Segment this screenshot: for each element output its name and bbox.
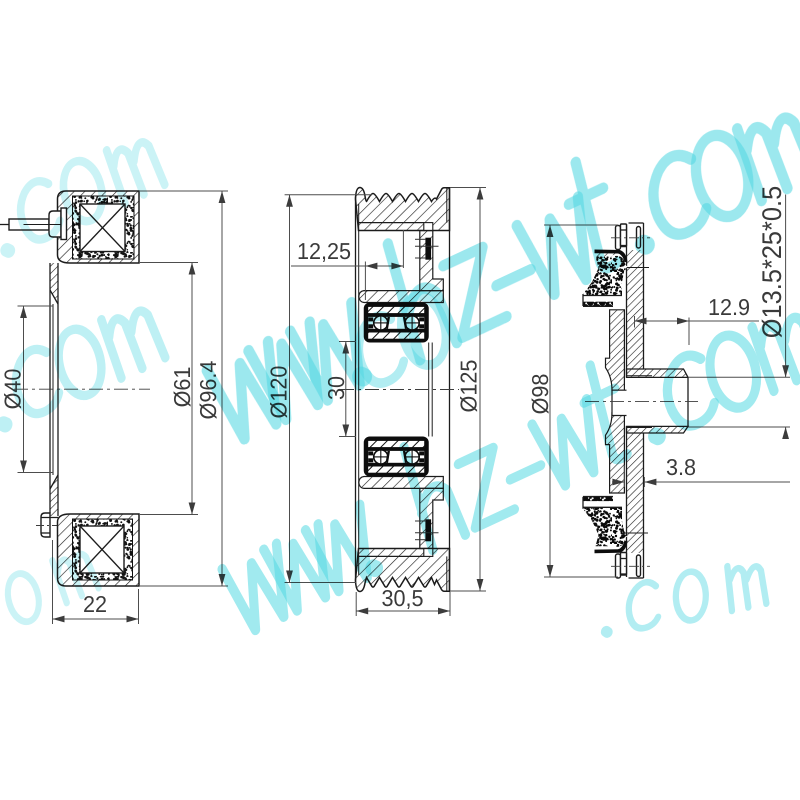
svg-text:Ø61: Ø61 (169, 367, 195, 408)
svg-text:Ø98: Ø98 (527, 374, 553, 415)
svg-text:12,25: 12,25 (297, 238, 351, 264)
svg-text:Ø13.5*25*0.5: Ø13.5*25*0.5 (757, 186, 787, 338)
svg-text:12.9: 12.9 (708, 294, 750, 320)
svg-text:3.8: 3.8 (666, 454, 696, 480)
svg-text:Ø125: Ø125 (456, 360, 482, 413)
svg-text:22: 22 (83, 591, 107, 617)
svg-text:30,5: 30,5 (381, 585, 423, 611)
